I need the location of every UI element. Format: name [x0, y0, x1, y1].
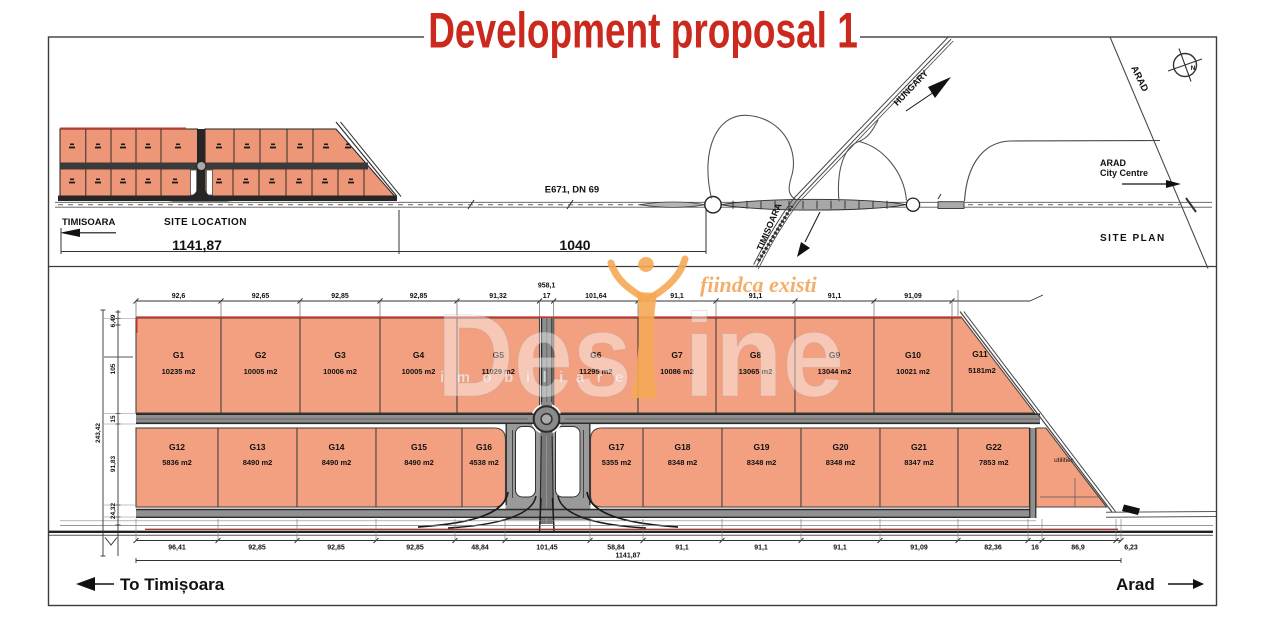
svg-text:G22: G22 — [986, 442, 1002, 452]
svg-text:15: 15 — [110, 415, 117, 423]
svg-text:G16: G16 — [476, 442, 492, 452]
svg-text:7853 m2: 7853 m2 — [979, 458, 1009, 467]
svg-text:G19: G19 — [753, 442, 769, 452]
svg-text:Development proposal 1: Development proposal 1 — [428, 3, 858, 59]
svg-text:91,1: 91,1 — [833, 545, 847, 552]
svg-text:48,84: 48,84 — [471, 545, 489, 552]
svg-text:10021 m2: 10021 m2 — [896, 367, 930, 376]
svg-text:10235 m2: 10235 m2 — [162, 367, 196, 376]
svg-text:92,85: 92,85 — [248, 545, 266, 552]
svg-text:8347 m2: 8347 m2 — [904, 458, 934, 467]
svg-text:5181m2: 5181m2 — [968, 366, 996, 375]
svg-text:16: 16 — [1031, 545, 1039, 552]
svg-text:1141,87: 1141,87 — [616, 553, 641, 560]
svg-text:imobiliare: imobiliare — [440, 369, 636, 386]
svg-text:5836 m2: 5836 m2 — [162, 458, 192, 467]
svg-text:10005 m2: 10005 m2 — [244, 367, 278, 376]
svg-text:1040: 1040 — [559, 237, 590, 253]
svg-text:6,49: 6,49 — [110, 314, 117, 327]
svg-text:92,65: 92,65 — [252, 293, 270, 300]
svg-text:To Timișoara: To Timișoara — [120, 575, 225, 594]
svg-text:G2: G2 — [255, 350, 267, 360]
svg-text:91,09: 91,09 — [910, 545, 928, 552]
svg-text:8348 m2: 8348 m2 — [747, 458, 777, 467]
svg-text:91,1: 91,1 — [754, 545, 768, 552]
svg-text:8490 m2: 8490 m2 — [322, 458, 352, 467]
svg-text:G12: G12 — [169, 442, 185, 452]
svg-text:G13: G13 — [249, 442, 265, 452]
svg-text:8490 m2: 8490 m2 — [404, 458, 434, 467]
svg-text:91,83: 91,83 — [110, 455, 117, 472]
svg-text:G3: G3 — [334, 350, 346, 360]
svg-text:10006 m2: 10006 m2 — [323, 367, 357, 376]
svg-text:4538 m2: 4538 m2 — [469, 458, 499, 467]
svg-text:G21: G21 — [911, 442, 927, 452]
svg-text:G7: G7 — [671, 350, 683, 360]
svg-text:92,85: 92,85 — [331, 293, 349, 300]
svg-text:G10: G10 — [905, 350, 921, 360]
svg-text:SITE LOCATION: SITE LOCATION — [164, 217, 247, 228]
svg-text:96,41: 96,41 — [168, 545, 186, 552]
svg-text:N: N — [1191, 65, 1196, 72]
svg-text:86,9: 86,9 — [1071, 545, 1085, 552]
svg-text:105: 105 — [110, 363, 117, 374]
svg-text:fiindca existi: fiindca existi — [700, 272, 818, 297]
svg-text:92,85: 92,85 — [410, 293, 428, 300]
svg-text:Des: Des — [437, 289, 632, 421]
svg-text:G15: G15 — [411, 442, 427, 452]
svg-text:G17: G17 — [608, 442, 624, 452]
svg-text:101,45: 101,45 — [536, 545, 558, 552]
svg-text:58,84: 58,84 — [607, 545, 625, 552]
svg-text:G14: G14 — [328, 442, 344, 452]
svg-text:92,85: 92,85 — [406, 545, 424, 552]
svg-text:5355 m2: 5355 m2 — [602, 458, 632, 467]
svg-text:8348 m2: 8348 m2 — [826, 458, 856, 467]
svg-text:G4: G4 — [413, 350, 425, 360]
svg-text:G1: G1 — [173, 350, 185, 360]
svg-text:91,1: 91,1 — [670, 293, 684, 300]
svg-text:82,36: 82,36 — [984, 545, 1002, 552]
svg-text:TIMISOARA: TIMISOARA — [62, 217, 115, 228]
svg-text:10005 m2: 10005 m2 — [402, 367, 436, 376]
svg-text:G11: G11 — [972, 349, 988, 359]
svg-text:243,42: 243,42 — [95, 423, 102, 443]
svg-text:6,23: 6,23 — [1124, 545, 1138, 552]
svg-text:1141,87: 1141,87 — [172, 237, 222, 253]
svg-text:91,09: 91,09 — [904, 293, 922, 300]
svg-text:ARAD: ARAD — [1100, 158, 1126, 168]
svg-text:92,6: 92,6 — [172, 293, 186, 300]
svg-text:G18: G18 — [674, 442, 690, 452]
svg-text:8348 m2: 8348 m2 — [668, 458, 698, 467]
svg-text:G20: G20 — [832, 442, 848, 452]
svg-text:SITE PLAN: SITE PLAN — [1100, 233, 1166, 244]
svg-text:E671, DN 69: E671, DN 69 — [545, 185, 599, 196]
svg-text:City Centre: City Centre — [1100, 168, 1148, 178]
svg-text:92,85: 92,85 — [327, 545, 345, 552]
svg-text:91,1: 91,1 — [675, 545, 689, 552]
svg-text:ine: ine — [684, 290, 844, 422]
svg-text:24,32: 24,32 — [110, 502, 117, 519]
svg-text:Arad: Arad — [1116, 575, 1155, 594]
svg-text:8490 m2: 8490 m2 — [243, 458, 273, 467]
